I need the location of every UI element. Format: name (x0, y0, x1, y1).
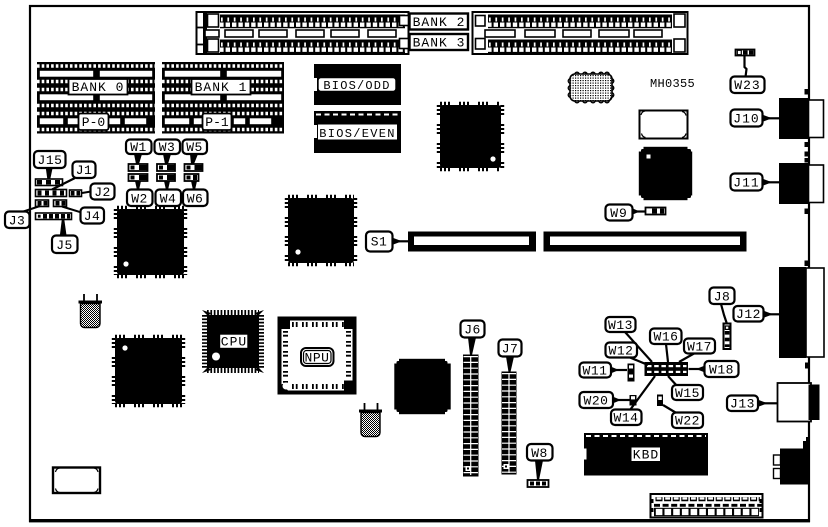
svg-text:BIOS/ODD: BIOS/ODD (323, 79, 390, 93)
svg-text:W9: W9 (610, 206, 628, 221)
svg-text:BANK 3: BANK 3 (413, 36, 466, 51)
svg-text:J7: J7 (502, 342, 519, 357)
svg-text:W15: W15 (675, 386, 700, 401)
svg-text:J5: J5 (56, 238, 73, 253)
svg-text:J10: J10 (733, 112, 759, 127)
svg-text:J11: J11 (733, 176, 759, 191)
svg-text:W20: W20 (584, 394, 609, 409)
svg-text:W23: W23 (734, 78, 760, 93)
svg-text:J6: J6 (464, 323, 481, 338)
svg-text:W22: W22 (675, 414, 700, 429)
svg-text:W2: W2 (131, 192, 148, 207)
svg-text:BANK 1: BANK 1 (195, 80, 248, 95)
svg-text:W4: W4 (160, 192, 177, 207)
svg-text:W17: W17 (687, 340, 712, 355)
svg-text:MH0355: MH0355 (650, 77, 695, 91)
svg-text:KBD: KBD (633, 448, 659, 463)
svg-text:NPU: NPU (305, 351, 330, 366)
svg-text:J2: J2 (94, 185, 111, 200)
svg-text:W3: W3 (159, 140, 176, 155)
svg-text:W13: W13 (608, 318, 633, 333)
svg-text:W5: W5 (186, 140, 203, 155)
svg-text:J3: J3 (9, 214, 26, 229)
svg-text:J1: J1 (76, 163, 93, 178)
svg-text:J8: J8 (714, 290, 731, 305)
svg-text:J15: J15 (38, 153, 63, 168)
svg-text:P-1: P-1 (205, 115, 229, 130)
svg-text:BIOS/EVEN: BIOS/EVEN (319, 127, 396, 141)
svg-text:W11: W11 (583, 364, 608, 379)
svg-text:S1: S1 (371, 235, 388, 250)
svg-text:J4: J4 (84, 209, 101, 224)
svg-text:J13: J13 (730, 397, 755, 412)
svg-text:W16: W16 (654, 330, 679, 345)
svg-text:CPU: CPU (221, 335, 247, 350)
svg-text:J12: J12 (736, 307, 761, 322)
svg-text:W12: W12 (609, 344, 634, 359)
svg-text:W1: W1 (130, 140, 147, 155)
svg-text:BANK 0: BANK 0 (72, 80, 125, 95)
svg-text:W8: W8 (531, 446, 548, 461)
svg-text:W18: W18 (709, 363, 734, 378)
svg-text:W14: W14 (614, 411, 639, 426)
svg-text:P-0: P-0 (82, 115, 105, 130)
svg-text:W6: W6 (187, 192, 204, 207)
svg-text:BANK 2: BANK 2 (413, 15, 466, 30)
